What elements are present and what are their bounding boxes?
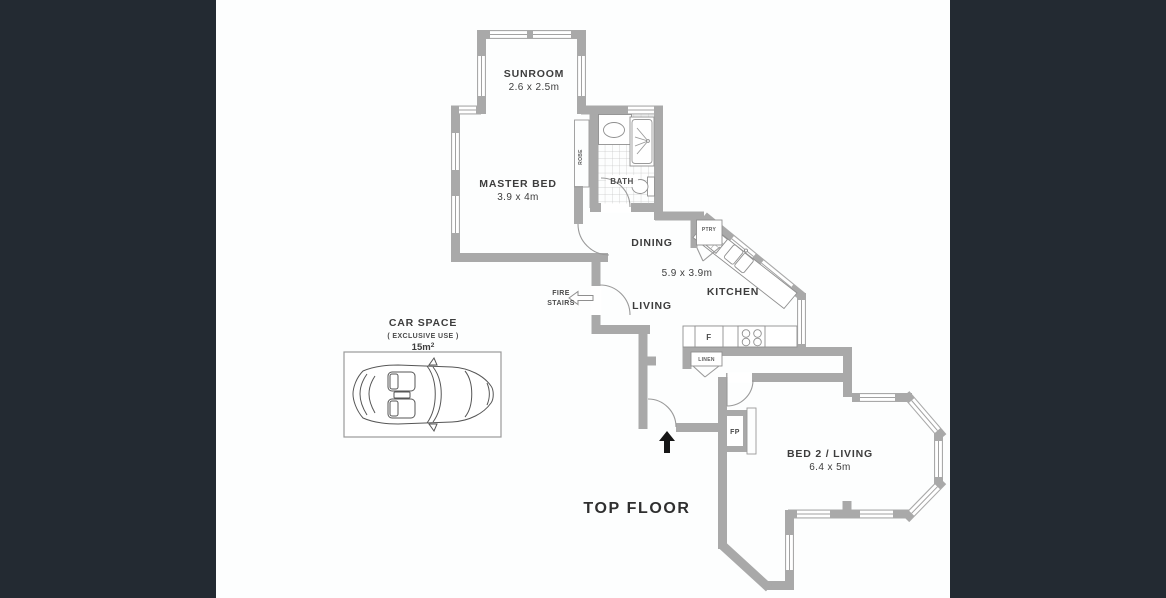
label-linen: LINEN — [698, 357, 715, 363]
bathroom-fixtures — [575, 115, 655, 204]
label-car-space: CAR SPACE — [389, 317, 457, 329]
master-door-arc — [578, 224, 609, 255]
label-car-area: 15m2 — [412, 342, 435, 353]
label-kitchen-dims: 5.9 x 3.9m — [662, 268, 713, 279]
label-bath: BATH — [610, 177, 634, 186]
basin-icon — [604, 123, 625, 138]
label-stairs: STAIRS — [547, 300, 575, 307]
floorplan-page: SUNROOM 2.6 x 2.5m MASTER BED 3.9 x 4m B… — [0, 0, 1166, 598]
kitchen-fixtures — [683, 220, 797, 454]
windows — [456, 35, 939, 571]
label-living: LIVING — [632, 300, 672, 312]
page-title: TOP FLOOR — [583, 500, 690, 517]
label-bed2-living: BED 2 / LIVING — [787, 448, 873, 460]
linen-closet — [691, 352, 722, 377]
floor-plan-drawing: SUNROOM 2.6 x 2.5m MASTER BED 3.9 x 4m B… — [0, 0, 1166, 598]
entry-door-arc — [648, 399, 676, 427]
label-sunroom: SUNROOM — [504, 68, 564, 80]
north-arrow-icon — [659, 431, 675, 453]
label-fridge: F — [706, 333, 711, 342]
label-dining: DINING — [631, 237, 673, 249]
label-exclusive-use: ( EXCLUSIVE USE ) — [387, 333, 458, 340]
label-master-bed: MASTER BED — [479, 178, 556, 190]
label-robe: ROBE — [578, 149, 584, 165]
label-kitchen: KITCHEN — [707, 286, 759, 298]
label-sunroom-dims: 2.6 x 2.5m — [509, 82, 560, 93]
shower-icon — [630, 117, 654, 166]
label-pantry: PTRY — [702, 227, 717, 233]
car-space — [344, 352, 501, 437]
label-master-dims: 3.9 x 4m — [497, 192, 539, 203]
fire-stairs-door-arc — [600, 285, 630, 315]
label-bed2-dims: 6.4 x 5m — [809, 462, 851, 473]
walls — [451, 30, 943, 588]
cooktop-icon — [738, 326, 765, 347]
label-fire: FIRE — [552, 290, 570, 297]
label-fireplace: FP — [730, 429, 740, 436]
